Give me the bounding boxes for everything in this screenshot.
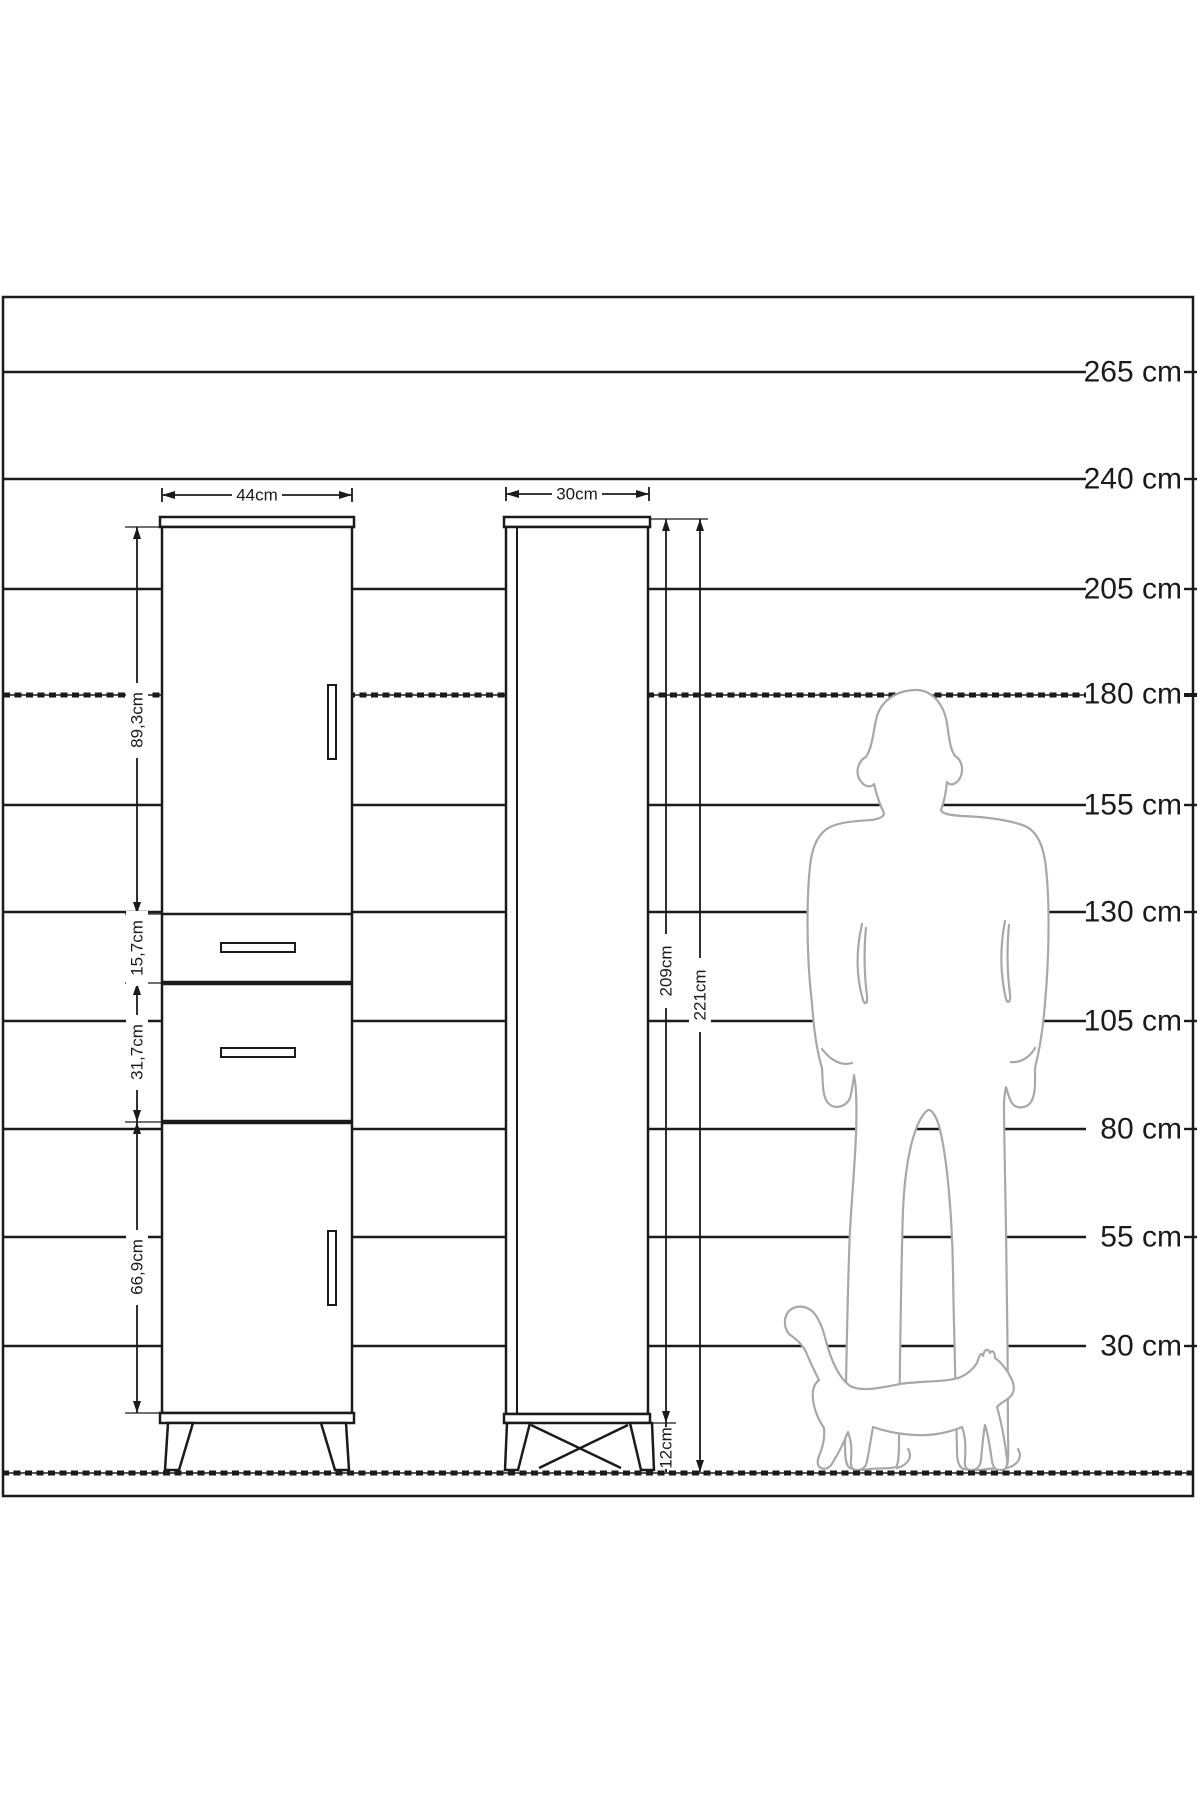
drawer-2-handle (221, 1048, 295, 1057)
scale-label-205: 205 cm (1084, 573, 1182, 606)
front-plinth (160, 1413, 354, 1423)
scale-label-105: 105 cm (1084, 1005, 1182, 1038)
size-guide-drawing: 44cm 30cm 89,3cm 15,7cm 31,7cm 66,9cm (0, 0, 1200, 1800)
scale-label-130: 130 cm (1084, 896, 1182, 929)
scale-label-55: 55 cm (1100, 1221, 1182, 1254)
scale-label-155: 155 cm (1084, 789, 1182, 822)
drawer-1-handle (221, 943, 295, 952)
scale-label-80: 80 cm (1100, 1113, 1182, 1146)
side-depth-label: 30cm (556, 485, 598, 504)
front-carcass (162, 527, 352, 1413)
lower-door-height-label: 66,9cm (128, 1239, 147, 1295)
total-height-label: 221cm (691, 969, 710, 1020)
scale-label-30: 30 cm (1100, 1330, 1182, 1363)
lower-door-handle (328, 1231, 336, 1305)
cabinet-front-view (160, 517, 354, 1470)
upper-door-height-label: 89,3cm (128, 692, 147, 748)
leg-height-label: 12cm (657, 1427, 676, 1469)
side-plinth (504, 1414, 650, 1423)
front-width-label: 44cm (236, 486, 278, 505)
drawer-1-height-label: 15,7cm (128, 920, 147, 976)
cabinet-side-view (504, 517, 654, 1470)
body-height-label: 209cm (657, 945, 676, 996)
front-top-board (160, 517, 354, 527)
drawing-canvas: 44cm 30cm 89,3cm 15,7cm 31,7cm 66,9cm (0, 0, 1200, 1800)
drawer-2-height-label: 31,7cm (128, 1024, 147, 1080)
side-carcass (506, 527, 648, 1414)
side-top-board (504, 517, 650, 527)
scale-label-265: 265 cm (1084, 356, 1182, 389)
scale-label-180: 180 cm (1084, 678, 1182, 711)
upper-door-handle (328, 685, 336, 759)
scale-label-240: 240 cm (1084, 463, 1182, 496)
